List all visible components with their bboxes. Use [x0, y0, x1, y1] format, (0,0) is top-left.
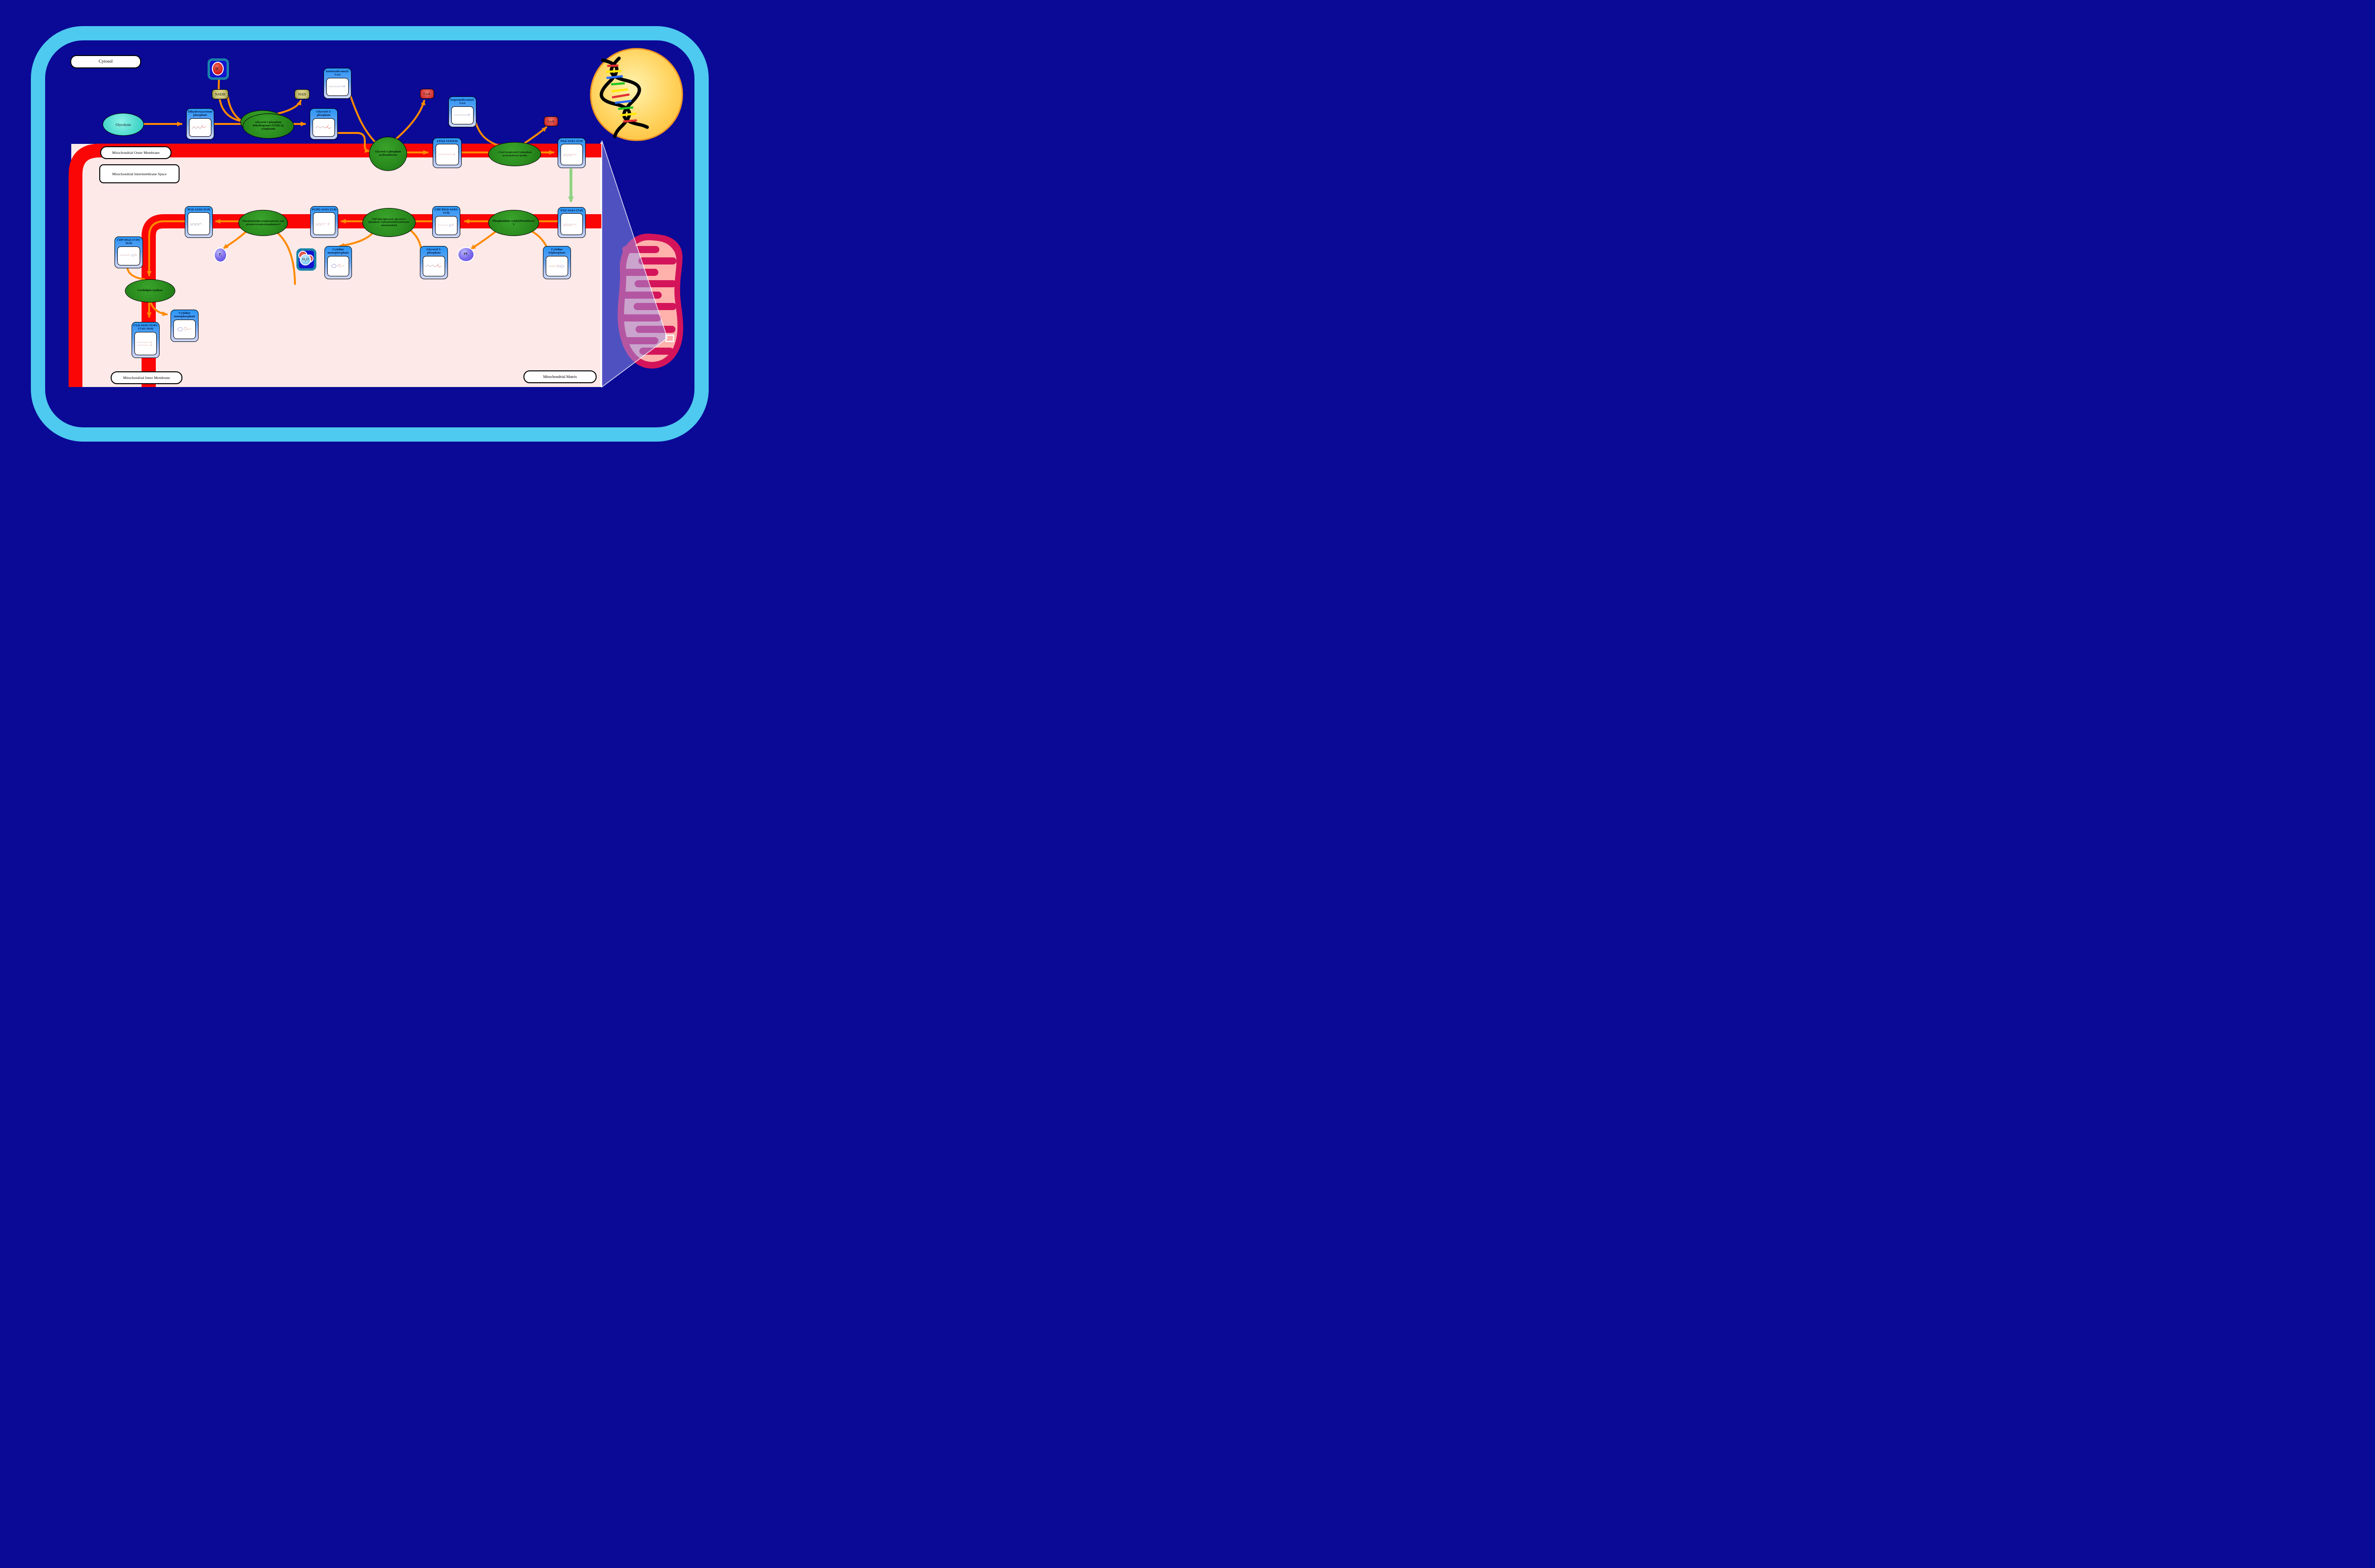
pathway-canvas: Cytosol Mitochondrial Outer Membrane Mit… [0, 0, 745, 455]
cofactor-coa-1[interactable]: CoA [420, 89, 434, 99]
node-pgp[interactable]: PGP(i-14:0/i-15:0) [310, 206, 338, 238]
cofactor-ppi[interactable]: PPi [458, 248, 474, 261]
node-cl-label: CL(i-14:0/i-15:0/i-17:0/i-19:0) [132, 322, 159, 331]
glycolysis-node[interactable]: Glycolysis [103, 113, 144, 136]
molecule-structure [313, 118, 335, 137]
node-ipdcoa[interactable]: Isopentadecanoyl-CoA [448, 96, 476, 127]
arrow-g3p-to-gpat [336, 133, 369, 151]
node-cmp2-label: Cytidine monophosphate [171, 310, 198, 319]
node-pa-inner-label: PA(i-14:0/i-15:0) [558, 208, 585, 213]
node-itdcoa-label: Isotetradecanoyl-CoA [324, 68, 351, 77]
enzyme-cds2[interactable]: Phosphatidate cytidylyltransferase 2 [488, 210, 539, 236]
node-pg-label: PG(i-14:0/i-15:0) [185, 207, 212, 212]
label-cytosol: Cytosol [70, 55, 141, 68]
enzyme-ptpmt1[interactable]: Phosphatidylglycerophosphatase and prote… [238, 210, 288, 236]
label-inner-membrane: Mitochondrial Inner Membrane [111, 371, 182, 384]
enzyme-crls1[interactable]: Cardiolipin synthase [125, 279, 175, 302]
proton-symbol: H+ [213, 63, 223, 75]
arrow-ipdcoa-to-agpat [474, 114, 498, 145]
node-cdpdg2[interactable]: CDP-DG(i-17:0/i-19:0) [114, 236, 143, 268]
label-intermembrane-space: Mitochondrial Intermembrane Space [99, 164, 180, 183]
node-g3p2[interactable]: Glycerol 3-phosphate [420, 246, 448, 279]
molecule-structure [188, 212, 210, 235]
label-outer-membrane: Mitochondrial Outer Membrane [100, 146, 171, 159]
cofactor-coa-2[interactable]: CoA [544, 116, 558, 126]
arrow-cds2-to-ppi [471, 230, 498, 249]
enzyme-gpd[interactable]: Glycerol-3-phosphate dehydrogenase [NAD(… [243, 113, 294, 139]
node-lpa[interactable]: LPA(i-14:0/0:0) [433, 138, 462, 168]
node-pa-outer-label: PA(i-14:0/i-15:0) [558, 138, 585, 143]
molecule-structure [326, 78, 349, 96]
arrow-cdpdg2-to-crls1 [127, 267, 144, 279]
node-g3p[interactable]: Glycerol 3-phosphate [310, 108, 338, 140]
node-ipdcoa-label: Isopentadecanoyl-CoA [449, 97, 476, 106]
molecule-structure [173, 320, 196, 339]
node-cl[interactable]: CL(i-14:0/i-15:0/i-17:0/i-19:0) [132, 322, 160, 358]
node-itdcoa[interactable]: Isotetradecanoyl-CoA [323, 68, 351, 99]
label-matrix: Mitochondrial Matrix [523, 370, 597, 383]
enzyme-gpat[interactable]: Glycerol-3-phosphate acyltransferase [369, 137, 407, 171]
arrow-hplus-to-gpd [219, 80, 246, 122]
mitochondrion-illustration [598, 133, 698, 395]
node-g3p-label: Glycerol 3-phosphate [310, 109, 337, 118]
node-g3p2-label: Glycerol 3-phosphate [420, 246, 447, 255]
molecule-structure [560, 213, 583, 235]
node-cmp2[interactable]: Cytidine monophosphate [171, 310, 199, 342]
h2o-icon[interactable]: H2O [296, 248, 316, 271]
node-lpa-label: LPA(i-14:0/0:0) [433, 138, 461, 143]
node-cmp1[interactable]: Cytidine monophosphate [324, 246, 352, 279]
molecule-structure [117, 246, 140, 265]
molecule-structure [560, 144, 583, 165]
node-pa-inner[interactable]: PA(i-14:0/i-15:0) [558, 207, 586, 238]
arrow-ptpmt1-to-pi [224, 230, 248, 248]
node-cdpdg2-label: CDP-DG(i-17:0/i-19:0) [115, 237, 142, 246]
enzyme-pgs1[interactable]: CDP-diacylglycerol--glycerol-3-phosphate… [362, 208, 416, 237]
node-dhap[interactable]: Dihydroxyacetone phosphate [186, 108, 214, 140]
molecule-structure [546, 256, 568, 276]
node-ctp-label: Cytidine triphosphate [543, 246, 570, 255]
molecule-structure [134, 332, 157, 355]
arrow-gpat-to-coa [395, 101, 424, 140]
node-cdpdg1-label: CDP-DG(i-14:0/i-15:0) [433, 207, 460, 216]
node-ctp[interactable]: Cytidine triphosphate [543, 246, 571, 279]
arrow-pg-to-crls1 [149, 221, 185, 275]
h2o-atom-blue: H2O [301, 255, 310, 264]
hplus-icon[interactable]: H+ [208, 58, 229, 80]
node-pgp-label: PGP(i-14:0/i-15:0) [311, 207, 338, 212]
node-cdpdg1[interactable]: CDP-DG(i-14:0/i-15:0) [432, 206, 460, 238]
node-pg[interactable]: PG(i-14:0/i-15:0) [185, 206, 213, 238]
glycolysis-label: Glycolysis [115, 123, 131, 127]
cofactor-nad[interactable]: NAD [294, 89, 310, 99]
molecule-structure [313, 212, 335, 235]
node-cmp1-label: Cytidine monophosphate [325, 246, 351, 255]
arrow-h2o-to-ptpmt1 [272, 228, 295, 284]
node-dhap-label: Dihydroxyacetone phosphate [187, 109, 214, 118]
cofactor-nadh[interactable]: NADH [212, 89, 228, 99]
molecule-structure [451, 106, 474, 124]
cofactor-pi[interactable]: Pi [215, 248, 226, 262]
enzyme-agpat[interactable]: 1-Acyl-sn-glycerol-3-phosphate acyltrans… [488, 142, 541, 166]
molecule-structure [436, 144, 459, 165]
molecule-structure [327, 256, 349, 276]
molecule-structure [189, 118, 211, 137]
molecule-structure [423, 256, 445, 276]
node-pa-outer[interactable]: PA(i-14:0/i-15:0) [558, 138, 586, 168]
arrow-pgs1-to-cmp [340, 232, 373, 246]
molecule-structure [435, 216, 457, 235]
